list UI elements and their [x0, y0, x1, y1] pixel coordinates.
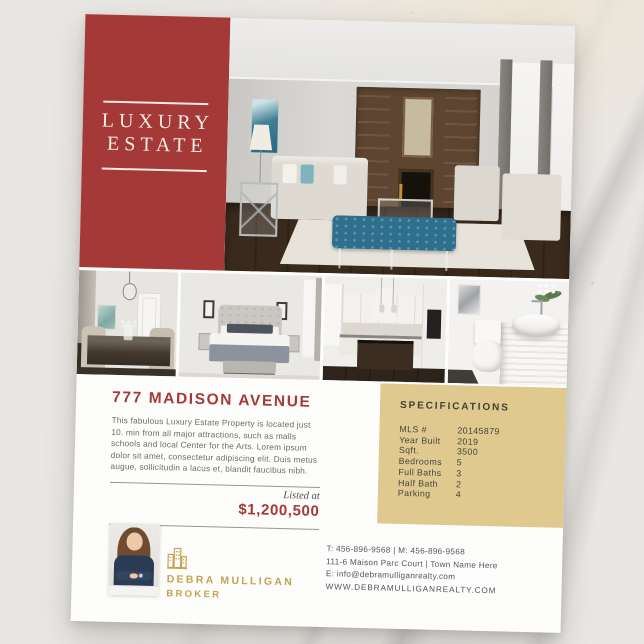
specifications-list: MLS # 20145879 Year Built 2019 Sqft. 350… [398, 424, 566, 503]
agent-name: DEBRA MULLIGAN [167, 573, 295, 588]
sofa [270, 155, 368, 221]
specifications-heading: SPECIFICATIONS [400, 400, 566, 415]
spec-label: Parking [398, 488, 456, 500]
hero-section: LUXURY ESTATE [79, 14, 575, 279]
dark-pillows [226, 324, 273, 334]
spec-value: 4 [456, 490, 462, 501]
orchid-flowers [535, 282, 559, 294]
chandelier-stem [129, 271, 130, 283]
agent-identity: DEBRA MULLIGAN BROKER [166, 524, 295, 602]
pendant-light [379, 304, 384, 312]
armchair [501, 174, 561, 241]
floor [448, 370, 479, 384]
mantel-mirror [402, 97, 433, 158]
agent-role: BROKER [166, 588, 294, 602]
pillow [300, 165, 314, 184]
spec-value: 3500 [457, 447, 478, 458]
brand-divider-top [104, 101, 208, 106]
content-section: 777 MADISON AVENUE This fabulous Luxury … [71, 374, 567, 633]
listing-description: This fabulous Luxury Estate Property is … [110, 415, 321, 478]
pillow [283, 164, 297, 183]
contact-block: T: 456-896-9568 | M: 456-896-9568 111-6 … [325, 543, 498, 598]
buildings-logo-icon [167, 545, 188, 570]
agent-headshot [108, 523, 160, 596]
armchair [453, 165, 499, 222]
tufted-ottoman [332, 215, 457, 251]
living-room-photo [224, 18, 575, 279]
spec-value: 2 [456, 479, 462, 490]
pendant-light [391, 305, 396, 313]
toilet [472, 340, 504, 372]
agent-hand [130, 573, 138, 578]
desk [108, 585, 158, 596]
wall-art [458, 284, 481, 315]
bathroom-photo [448, 279, 569, 386]
lamp-stem [260, 150, 262, 183]
marble-backdrop: LUXURY ESTATE [0, 0, 644, 644]
kitchen-island [357, 340, 414, 369]
spec-value: 5 [457, 457, 463, 468]
pillow [333, 166, 347, 185]
flyer-page: LUXURY ESTATE [71, 14, 576, 633]
bench [223, 361, 277, 374]
drape [314, 278, 322, 361]
dining-room-photo [77, 270, 179, 376]
spec-value: 2019 [457, 436, 478, 447]
chrome-side-table [239, 182, 278, 236]
photo-strip [77, 270, 569, 386]
agent-block: DEBRA MULLIGAN BROKER [108, 523, 295, 603]
framed-art [203, 300, 215, 318]
wall-oven [426, 310, 441, 339]
listing-block: 777 MADISON AVENUE This fabulous Luxury … [109, 389, 322, 530]
spec-value: 3 [456, 468, 462, 479]
brand-panel: LUXURY ESTATE [79, 14, 230, 270]
bedroom-photo [179, 273, 322, 380]
specifications-panel: SPECIFICATIONS MLS # 20145879 Year Built… [377, 383, 566, 528]
listing-title: 777 MADISON AVENUE [112, 389, 322, 412]
kitchen-photo [323, 276, 448, 383]
brand-divider-bottom [102, 168, 206, 173]
decor-bottle [399, 184, 402, 199]
brand-word-estate: ESTATE [82, 132, 228, 159]
faucet-spout [532, 300, 543, 302]
chandelier [122, 284, 136, 301]
flowers [120, 319, 138, 328]
